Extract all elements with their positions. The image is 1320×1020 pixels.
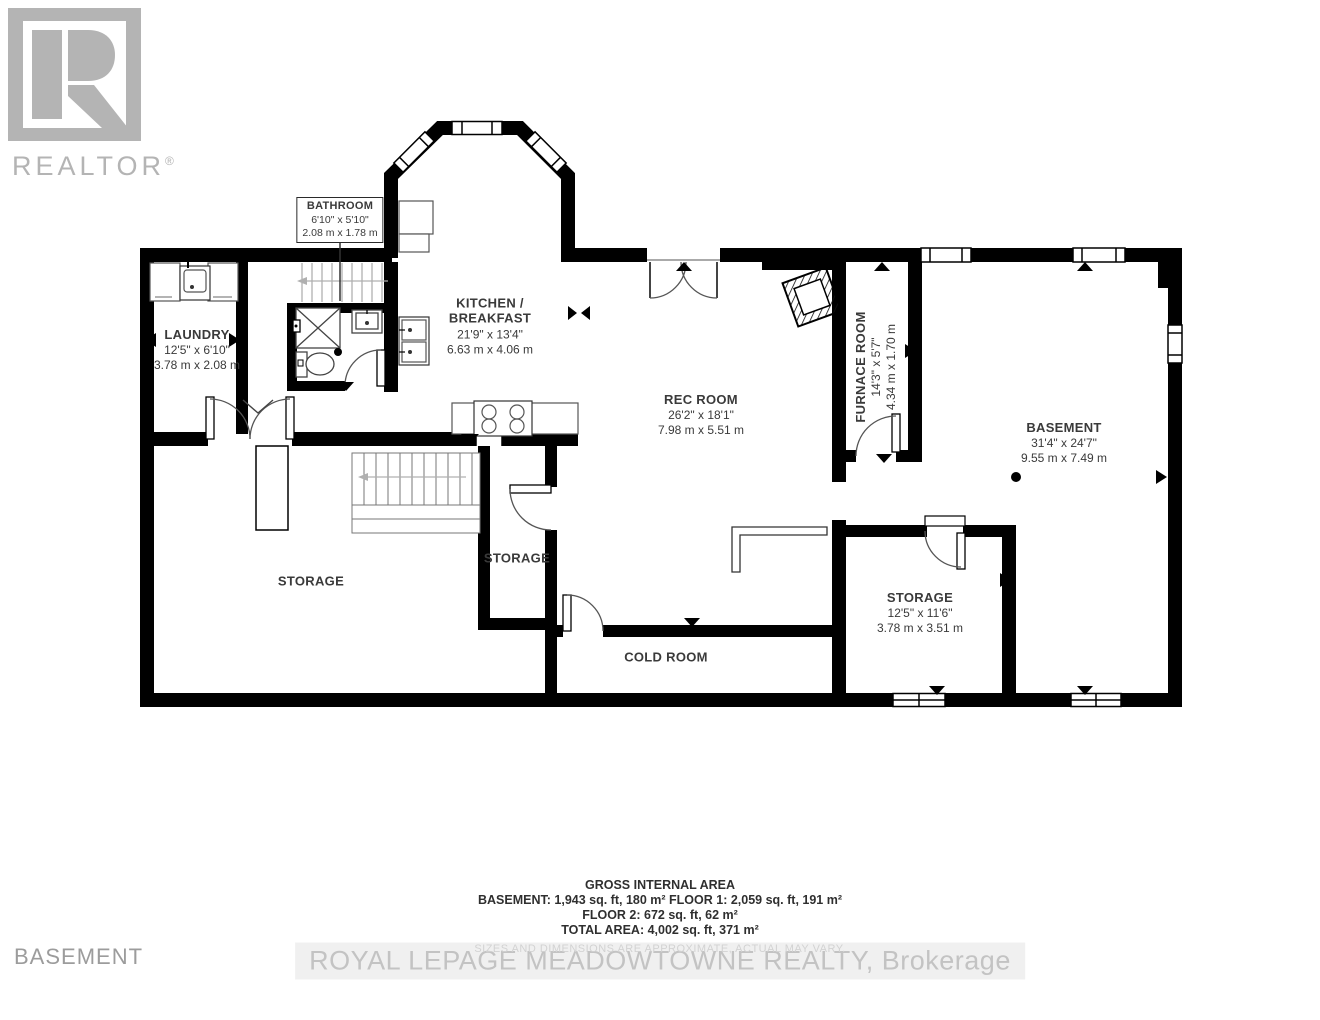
window-bottom-1 [893,694,945,707]
storage-right-door [925,516,965,569]
storage-mid-label: STORAGE [484,550,550,565]
bathroom-fixtures [293,308,382,377]
area-summary-line: TOTAL AREA: 4,002 sq. ft, 371 m² [330,923,990,937]
marker-right-icon [1156,470,1167,484]
basement-label: BASEMENT 31'4" x 24'7" 9.55 m x 7.49 m [1021,420,1107,466]
cold-room-door [563,595,603,637]
marker-up-icon [1077,262,1093,271]
area-summary-title: GROSS INTERNAL AREA [330,878,990,892]
storage-right-label: STORAGE 12'5" x 11'6" 3.78 m x 3.51 m [877,590,963,636]
bay-window-right [526,132,566,172]
toilet-bowl [306,353,334,375]
stairs-upper [297,263,388,302]
floor-drain-dot [1011,472,1021,482]
disclaimer-text: SIZES AND DIMENSIONS ARE APPROXIMATE, AC… [474,943,845,955]
bay-window-top [452,122,502,135]
stove [474,401,532,436]
area-summary-line: BASEMENT: 1,943 sq. ft, 180 m² FLOOR 1: … [330,893,990,907]
area-summary-line: FLOOR 2: 672 sq. ft, 62 m² [330,908,990,922]
floor-drain-dot [334,348,342,356]
marker-left-icon [581,306,590,320]
bar-counter [732,527,827,572]
bay-window-left [394,132,434,172]
kitchen-cabinet-lower [399,234,429,252]
cold-room-label: COLD ROOM [624,649,708,664]
storage-mid-door [510,485,557,530]
kitchen-cabinet-upper [399,201,433,234]
kitchen-label: KITCHEN / BREAKFAST 21'9" x 13'4" 6.63 m… [447,296,533,357]
marker-up-icon [874,262,890,271]
laundry-counter-left [150,263,180,301]
window-top-2 [1073,248,1125,262]
stairs-lower [352,453,480,533]
area-summary: GROSS INTERNAL AREA BASEMENT: 1,943 sq. … [330,878,990,937]
floor-plan-page: REALTOR® [0,0,1320,1020]
window-top-1 [921,248,971,262]
furnace-room-label: FURNACE ROOM 14'3" x 5'7" 4.34 m x 1.70 … [853,311,899,422]
laundry-counter-right [208,263,238,301]
marker-up-icon [676,262,692,271]
bathroom-label: BATHROOM 6'10" x 5'10" 2.08 m x 1.78 m [296,197,383,243]
window-right [1168,325,1182,363]
storage-left-label: STORAGE [278,573,344,588]
marker-right-icon [568,306,577,320]
bathroom-door [345,350,385,386]
laundry-label: LAUNDRY 12'5" x 6'10" 3.78 m x 2.08 m [154,327,240,373]
floor-plan-drawing [0,0,1320,1020]
floor-title: BASEMENT [14,944,143,970]
rec-room-double-door [647,248,720,298]
open-door-leaf [256,446,288,530]
rec-room-label: REC ROOM 26'2" x 18'1" 7.98 m x 5.51 m [658,392,744,438]
laundry-double-door [206,397,294,530]
window-bottom-2 [1071,694,1121,707]
